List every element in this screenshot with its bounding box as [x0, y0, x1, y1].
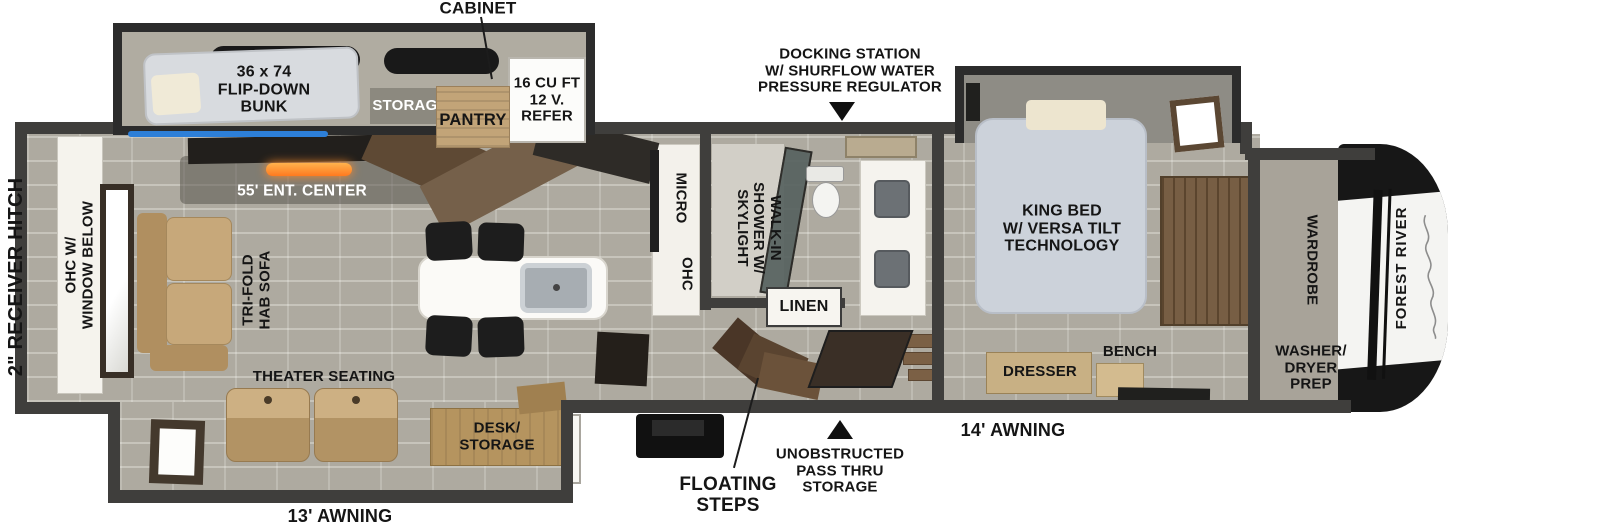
skylight	[845, 136, 917, 158]
micro-label: MICRO	[672, 173, 689, 224]
wall-bottom-deep	[108, 490, 573, 503]
island-chair-3	[425, 315, 473, 357]
kitchen-ohc-label: OHC	[678, 257, 695, 291]
rear-lower-window-pane	[158, 428, 196, 475]
bunk-window-2	[384, 48, 499, 74]
wall-top-front	[1245, 148, 1375, 160]
pass-thru-arrow	[827, 420, 853, 439]
shower-label: WALK-IN SHOWER W/ SKYLIGHT	[733, 182, 783, 274]
bed-pillow	[1026, 100, 1106, 130]
bunk-pillow	[151, 72, 202, 115]
king-bed-label: KING BED W/ VERSA TILT TECHNOLOGY	[1003, 203, 1121, 256]
bedroom-corner-window	[1169, 96, 1224, 153]
fireplace-glow	[266, 163, 352, 176]
wall-bottom-main	[561, 400, 1351, 413]
docking-station-label: DOCKING STATION W/ SHURFLOW WATER PRESSU…	[758, 46, 942, 96]
island-chair-1	[425, 221, 473, 261]
vanity-sink-2	[874, 250, 910, 288]
bedroom-step-3	[908, 369, 934, 381]
pass-thru-panel	[595, 332, 650, 387]
theater-button-2	[352, 396, 360, 404]
theater-button-1	[264, 396, 272, 404]
wall-step-right	[561, 402, 573, 503]
left-wall-window-pane	[106, 190, 128, 372]
island-chair-2	[477, 222, 524, 262]
toilet-bowl	[812, 182, 840, 218]
cap-stripe-thin	[1382, 189, 1392, 379]
exterior-step-top	[652, 420, 704, 436]
sofa-label: TRI-FOLD HAB SOFA	[241, 250, 274, 329]
microwave	[650, 150, 659, 252]
ent-center-label: 55' ENT. CENTER	[237, 182, 367, 199]
cabinet-callout-label: CABINET	[440, 0, 517, 18]
led-accent-strip	[128, 131, 328, 137]
theater-label: THEATER SEATING	[253, 369, 395, 386]
pass-thru-label: UNOBSTRUCTED PASS THRU STORAGE	[776, 446, 904, 496]
sofa-back	[137, 213, 167, 353]
sink-faucet	[553, 284, 560, 291]
vanity-sink-1	[874, 180, 910, 218]
toilet-tank	[806, 166, 844, 182]
rv-floorplan: 36 x 74 FLIP-DOWN BUNK STORAGE FOREST RI…	[0, 0, 1600, 528]
sofa-arm	[150, 345, 228, 371]
desk-hutch	[517, 382, 568, 415]
washer-dryer-label: WASHER/ DRYER PREP	[1275, 343, 1346, 393]
bunk-label: 36 x 74 FLIP-DOWN BUNK	[218, 64, 310, 117]
wall-step-left	[108, 402, 120, 502]
cap-stripe	[1367, 190, 1383, 380]
bedroom-wardrobe-doors	[1160, 176, 1254, 326]
pantry-label: PANTRY	[439, 111, 506, 129]
wall-bottom-rear	[15, 402, 120, 414]
awning-rear-label: 13' AWNING	[288, 507, 393, 527]
bench-label: BENCH	[1103, 344, 1157, 361]
slide-window-small	[966, 83, 980, 121]
hitch-label: 2" RECEIVER HITCH	[5, 178, 27, 376]
wall-bath-left	[700, 134, 711, 310]
floating-steps-label: FLOATING STEPS	[679, 475, 776, 517]
sofa-cushion-2	[166, 283, 232, 345]
signature-squiggle	[1416, 210, 1445, 341]
sofa-cushion-1	[166, 217, 232, 281]
refer-label: 16 CU FT 12 V. REFER	[514, 75, 581, 125]
ohc-window-label: OHC W/ WINDOW BELOW	[64, 201, 97, 329]
wall-bedroom-front	[1248, 148, 1260, 404]
bedroom-step-2	[903, 352, 934, 365]
wall-bath-right	[932, 134, 944, 404]
island-chair-4	[477, 316, 524, 358]
docking-station-arrow	[829, 102, 855, 121]
brand-label: FOREST RIVER	[1394, 207, 1411, 330]
linen-label: LINEN	[780, 298, 829, 316]
awning-front-label: 14' AWNING	[961, 421, 1066, 441]
wardrobe-label: WARDROBE	[1303, 215, 1320, 306]
desk-label: DESK/ STORAGE	[459, 421, 534, 454]
dresser-label: DRESSER	[1003, 364, 1077, 381]
